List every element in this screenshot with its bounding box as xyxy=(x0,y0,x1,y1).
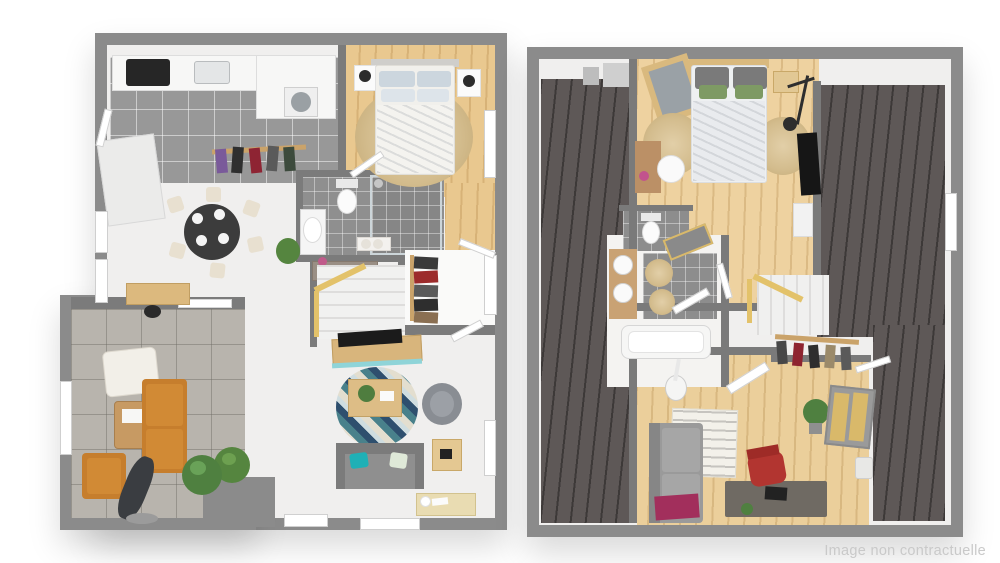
bed-pillow-1 xyxy=(379,71,415,87)
bed-pillow-4 xyxy=(417,89,449,102)
desk-plant xyxy=(741,503,753,515)
stair-railing-post xyxy=(314,291,319,337)
parasol-base xyxy=(126,513,158,524)
dining-table xyxy=(184,204,240,260)
bed-pillow-3 xyxy=(381,89,415,102)
terrace-plant-highlight xyxy=(190,461,206,475)
attic-floor-right xyxy=(817,85,945,337)
sofa-arm-left xyxy=(336,443,345,489)
coat-black xyxy=(231,147,244,174)
ground-floor-plan xyxy=(60,15,512,545)
closet-item-4 xyxy=(824,345,836,369)
sofa-pillow-teal xyxy=(349,452,369,469)
daybed-cushion-1 xyxy=(662,428,700,472)
wall-bathroom-right xyxy=(721,235,729,387)
terrace-armchair-cushion xyxy=(87,458,121,494)
toilet-tank xyxy=(336,179,358,188)
sofa-back xyxy=(336,443,424,454)
closet-item-4 xyxy=(414,299,438,312)
dining-plate-1 xyxy=(192,213,203,224)
bed-duvet xyxy=(377,105,453,173)
sofa-pillow-floral xyxy=(389,452,408,469)
desk-laptop xyxy=(765,486,788,501)
armchair-seat xyxy=(430,391,454,417)
laundry-basket xyxy=(855,457,873,479)
window-terrace-west xyxy=(60,381,72,455)
coat-green xyxy=(283,147,296,172)
daybed-blanket xyxy=(654,493,700,520)
bed-upper-duvet xyxy=(693,101,765,181)
toilet-upper-bowl xyxy=(642,221,660,244)
desk-paper-roll xyxy=(420,496,431,507)
stair-post-upper xyxy=(747,279,752,323)
wall-kitchen-bedroom xyxy=(338,45,346,175)
cooktop xyxy=(126,59,170,86)
vanity-sink-1 xyxy=(613,255,633,275)
closet-item-2 xyxy=(792,343,804,367)
stage: Image non contractuelle xyxy=(0,0,1000,563)
closet-item-5 xyxy=(414,311,439,323)
wall-wc-top xyxy=(619,205,693,211)
closet-item-2 xyxy=(414,270,439,283)
window-right-bedroom xyxy=(484,110,496,178)
coat-gray xyxy=(266,146,279,172)
dining-plate-4 xyxy=(218,233,229,244)
staircase xyxy=(317,265,405,339)
washing-machine-drum xyxy=(291,92,311,112)
bed-upper-pillow-green-2 xyxy=(735,85,763,99)
dining-plate-3 xyxy=(196,235,207,246)
attic-floor-right-lower xyxy=(873,325,945,521)
window-left-2 xyxy=(95,259,108,303)
bathtub-inner xyxy=(628,331,704,353)
dining-chair-4 xyxy=(247,236,265,254)
closet-item-5 xyxy=(840,347,851,370)
bed-upper-pillow-green-1 xyxy=(699,85,727,99)
nightstand-left-lamp xyxy=(359,70,371,82)
wall-bedroom2-left xyxy=(629,347,637,523)
coat-purple xyxy=(215,149,228,174)
kitchen-sink xyxy=(194,61,230,84)
floor-lamp xyxy=(783,117,797,131)
closet-item-1 xyxy=(776,341,788,365)
hall-plant xyxy=(276,238,300,264)
entry-door xyxy=(284,514,328,527)
window-left-1 xyxy=(95,211,108,253)
bath-rug-2 xyxy=(649,289,675,315)
window-right-1 xyxy=(484,255,497,315)
window-bottom xyxy=(360,518,420,530)
bath-rug-1 xyxy=(645,259,673,287)
closet-item-1 xyxy=(414,256,439,269)
bathroom-sink-basin xyxy=(303,217,322,243)
hall-desk-chair xyxy=(144,305,161,318)
toilet-upper-tank xyxy=(641,213,661,221)
storage-box-2 xyxy=(583,67,599,85)
window-right-upper xyxy=(945,193,957,251)
living-plant-highlight xyxy=(222,453,236,465)
dining-chair-2 xyxy=(206,187,221,202)
coffee-table-plant xyxy=(358,385,375,402)
bedroom1-chair xyxy=(657,155,685,183)
vase-flowers xyxy=(639,171,649,181)
dining-chair-5 xyxy=(209,262,225,278)
coffee-table-tray xyxy=(380,391,394,401)
nightstand-right-lamp xyxy=(463,75,475,87)
tv-bedroom1 xyxy=(797,132,821,195)
shower-head xyxy=(374,179,383,188)
bed-pillow-2 xyxy=(417,71,451,87)
bedroom2-plant xyxy=(803,399,829,425)
upper-floor-plan xyxy=(525,25,970,545)
closet-item-3 xyxy=(414,285,438,298)
window-right-2 xyxy=(484,420,496,476)
dresser-upper xyxy=(793,203,813,237)
dining-plate-2 xyxy=(214,209,225,220)
bath-towel-2 xyxy=(373,239,383,249)
terrace-sofa-cushion-top xyxy=(146,384,183,426)
toilet-bowl xyxy=(337,189,357,214)
hall-desk xyxy=(126,283,190,305)
side-table-items xyxy=(440,449,452,459)
sofa-arm-right xyxy=(415,443,424,489)
vanity-sink-2 xyxy=(613,283,633,303)
closet-item-3 xyxy=(808,345,820,369)
bedroom2-plant-pot xyxy=(809,423,822,434)
watermark: Image non contractuelle xyxy=(824,543,986,559)
bath-towel-1 xyxy=(361,239,371,249)
